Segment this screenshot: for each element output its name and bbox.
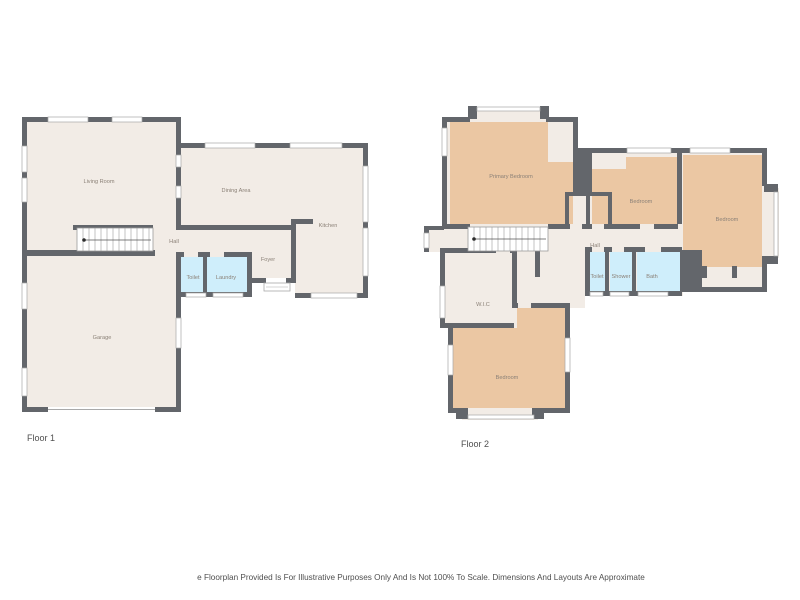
room-label-wic: W.I.C	[476, 302, 490, 308]
room-label-bath: Bath	[646, 274, 658, 280]
room-label-hall-f2: Hall	[590, 243, 600, 249]
floor1-title: Floor 1	[27, 433, 55, 443]
room-label-primary-bedroom: Primary Bedroom	[489, 174, 533, 180]
garage-door	[48, 407, 155, 412]
room-label-living: Living Room	[83, 179, 114, 185]
floor2-title: Floor 2	[461, 439, 489, 449]
room-label-kitchen: Kitchen	[319, 223, 338, 229]
room-label-shower: Shower	[612, 274, 631, 280]
room-label-laundry: Laundry	[216, 275, 236, 281]
floor1-plan: Living Room Dining Area Kitchen Hall Foy…	[22, 117, 368, 443]
room-label-bedroom-bottom: Bedroom	[496, 375, 519, 381]
stairs-icon-floor2	[468, 227, 548, 251]
room-label-dining: Dining Area	[222, 188, 252, 194]
room-label-toilet-f2: Toilet	[590, 274, 604, 280]
room-label-foyer: Foyer	[261, 257, 275, 263]
room-label-bedroom-right: Bedroom	[716, 217, 739, 223]
room-label-toilet-f1: Toilet	[186, 275, 200, 281]
floor2-plan: Primary Bedroom Bedroom Bedroom Hall Toi…	[424, 106, 779, 449]
floorplan-page: Living Room Dining Area Kitchen Hall Foy…	[0, 0, 800, 600]
room-label-hall-f1: Hall	[169, 239, 179, 245]
bay-window-top	[468, 106, 549, 120]
stairs-icon-floor1	[77, 228, 153, 251]
disclaimer-text: e Floorplan Provided Is For Illustrative…	[197, 573, 645, 582]
floorplan-canvas: Living Room Dining Area Kitchen Hall Foy…	[0, 0, 800, 600]
room-label-bedroom-mid: Bedroom	[630, 199, 653, 205]
room-label-garage: Garage	[93, 335, 112, 341]
